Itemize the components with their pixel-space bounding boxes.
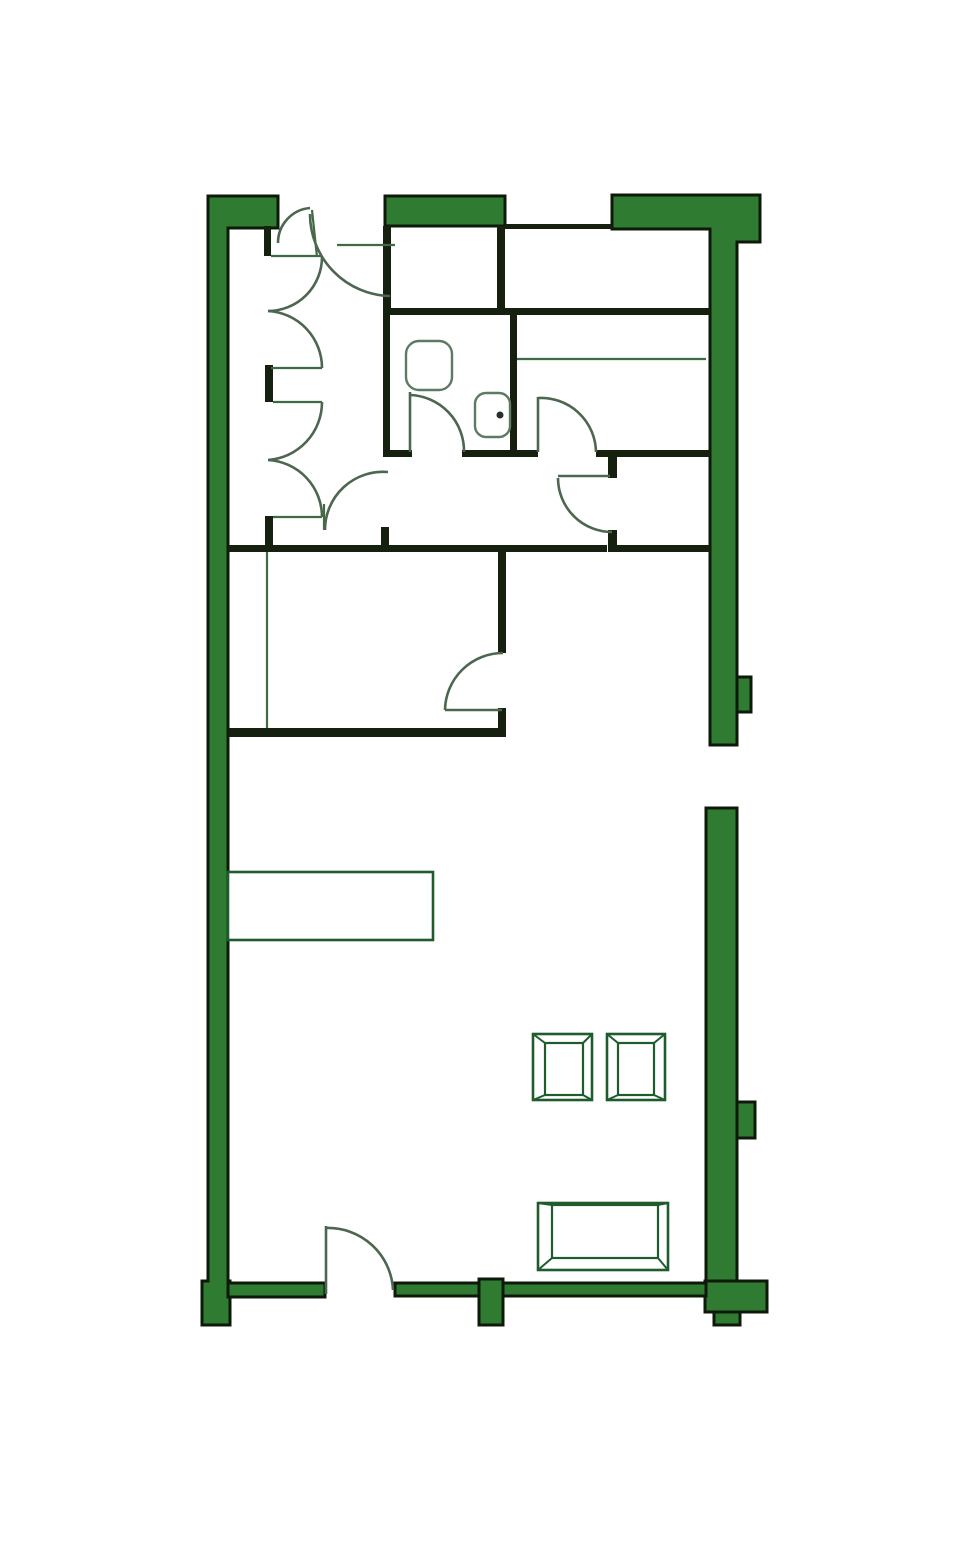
hall-bottom-wall-b [389,545,607,552]
sink [475,393,510,437]
hall-bottom-wall-a [228,545,382,552]
closet-stub-a [264,226,271,256]
entry-door-arc-large [310,214,390,296]
closetbox-right-wall [497,226,505,315]
room-bottom-wall [228,728,506,737]
furniture-layer [228,872,668,1270]
closet-bifold-arc-2a [268,402,322,460]
floor-plan-page [0,0,980,1568]
thin-lines-layer [267,210,706,728]
bath-right-wall [510,315,517,457]
wall-right-foot-tab [714,1312,740,1325]
wall-top-right-exterior [612,195,760,745]
closet-stub-c [265,516,273,547]
hall-top-wall-c [596,450,710,457]
bedroom-door-arc [538,398,596,452]
bath-left-wall [383,315,390,457]
room-door-arc [445,653,503,710]
wall-bottom-left [228,1283,325,1297]
hall-stub-left [381,527,389,552]
room-right-wall-upper [498,552,506,653]
counter [228,872,433,940]
closet-bifold-arc-1a [268,257,322,311]
wall-right-pier-upper [737,677,751,712]
chair-2 [607,1034,665,1100]
wall-bottom-pier [479,1279,503,1325]
wall-right-pier-lower [737,1102,755,1138]
entry-door-arc-small [278,208,310,243]
hall-top-wall-b [462,450,538,457]
hall-left-door-arc [325,472,388,530]
toilet [406,341,452,390]
table [538,1203,668,1270]
mid-horizontal-wall [391,308,710,315]
sink-faucet-dot [497,412,504,419]
patio-door-arc [326,1228,393,1290]
chair-1 [533,1034,592,1100]
closetbox-left-wall [383,226,391,315]
wall-top-middle-bar [385,196,505,226]
floor-plan-drawing [0,0,980,1568]
hall-bottom-wall-c [617,545,710,552]
wall-right-foot [705,1281,767,1312]
closet-stub-b [265,365,273,402]
table-outer [538,1203,668,1270]
bath-door-arc [410,395,464,452]
hall-top-wall-a [383,450,412,457]
hall-closet-door-arc [558,478,612,532]
top-strip-wall [505,224,612,229]
fixtures-layer [406,341,510,437]
hall-stub-lower [608,530,617,552]
closet-bifold-arc-1b [268,311,322,368]
wall-bottom-right [395,1283,706,1296]
exterior-walls-layer [202,195,767,1325]
wall-right-lower-exterior [706,808,737,1283]
closet-bifold-arc-2b [268,460,322,517]
